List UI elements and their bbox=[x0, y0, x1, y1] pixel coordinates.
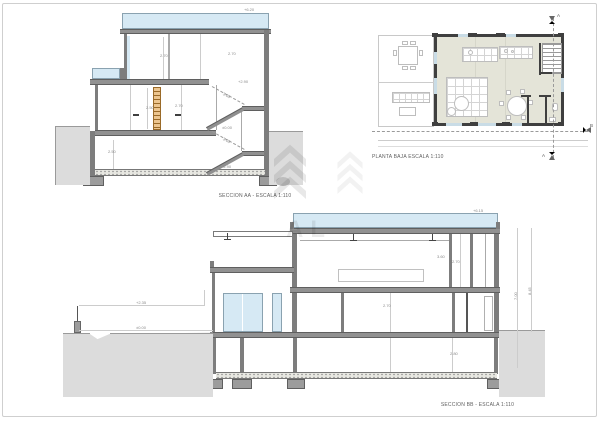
plan-coffee-table bbox=[454, 96, 469, 111]
plan-column bbox=[470, 122, 478, 126]
plan-column bbox=[468, 33, 477, 37]
plan-terrace-chair bbox=[419, 50, 423, 56]
plan-cooktop2 bbox=[511, 50, 514, 53]
plan-column bbox=[496, 33, 505, 37]
plan-door-bottom2 bbox=[478, 123, 496, 126]
bb-hanger bbox=[429, 240, 436, 241]
dim-label: +2.35 bbox=[136, 301, 146, 305]
dim-label: 2.70 bbox=[160, 54, 168, 58]
aa-door-mark2 bbox=[175, 114, 181, 116]
plan-chair bbox=[506, 115, 511, 120]
aa-door-mark bbox=[133, 114, 139, 116]
plan-stairs bbox=[542, 43, 562, 74]
dim-label: 2.80 bbox=[450, 352, 458, 356]
section-marker-a-bottom: A bbox=[542, 154, 545, 159]
aa-floor-slab bbox=[95, 130, 216, 136]
watermark-text: AL bbox=[286, 216, 332, 244]
plan-window-left bbox=[434, 52, 437, 64]
bb-post-base bbox=[74, 321, 81, 333]
bb-basement-column2 bbox=[293, 338, 297, 374]
bb-upper-door-line bbox=[485, 234, 486, 288]
aa-roof-slab bbox=[120, 29, 271, 34]
aa-stair-landing-1 bbox=[242, 106, 264, 111]
dim-label: 2.70 bbox=[228, 52, 236, 56]
bb-footing bbox=[232, 379, 252, 389]
dim-label: 2.70 bbox=[452, 260, 460, 264]
plan-ground-line2 bbox=[378, 146, 588, 147]
dim-label: +6.15 bbox=[473, 209, 483, 213]
plan-terrace-chair bbox=[410, 66, 416, 70]
bb-ground-column bbox=[341, 293, 344, 332]
plan-terrace-chair bbox=[402, 41, 408, 45]
plan-cooktop bbox=[504, 49, 508, 53]
section-marker-a-top: A bbox=[557, 14, 560, 19]
plan-outdoor-sofa bbox=[392, 92, 430, 103]
bb-terrain-surface-line bbox=[63, 333, 90, 334]
bb-terrain-left bbox=[63, 332, 213, 397]
dim-label: -2.90 bbox=[222, 165, 231, 169]
bb-upper-partition2 bbox=[470, 234, 473, 288]
plan-chair bbox=[506, 90, 511, 95]
aa-dim-line bbox=[163, 37, 164, 81]
aa-landing-post bbox=[241, 111, 242, 151]
aa-terrain-left bbox=[55, 126, 90, 185]
plan-stair-wall2 bbox=[539, 72, 552, 74]
bb-gravel-floor bbox=[216, 372, 497, 379]
bb-basement-wall bbox=[213, 338, 216, 374]
bb-glazed-door-double bbox=[223, 293, 263, 332]
section-marker-b: B bbox=[590, 124, 593, 129]
bb-ground-glass-line bbox=[390, 293, 391, 332]
plan-column bbox=[502, 122, 510, 126]
section-arrow-a-top bbox=[549, 16, 555, 24]
bb-low-left-wall bbox=[212, 273, 215, 333]
plan-door-right bbox=[561, 78, 564, 92]
plan-section-line-a bbox=[553, 18, 554, 158]
bb-low-parapet bbox=[210, 261, 214, 267]
dim-label: 7.00 bbox=[514, 292, 518, 300]
dim-label: +2.90 bbox=[238, 80, 248, 84]
bb-ground-partition bbox=[466, 293, 468, 332]
bb-ground-slab bbox=[210, 332, 499, 338]
plan-bath-wall4 bbox=[539, 95, 551, 97]
dim-label: 2.70 bbox=[175, 104, 183, 108]
plan-terrace-table bbox=[398, 46, 418, 65]
plan-column bbox=[432, 122, 438, 126]
bb-terrain-surface-line2 bbox=[110, 333, 213, 334]
plan-bath-wall2 bbox=[545, 96, 547, 125]
aa-stair-landing-2 bbox=[242, 151, 264, 156]
bb-ground-door bbox=[484, 296, 493, 331]
aa-upper-partition bbox=[168, 34, 170, 83]
bb-basement-column3 bbox=[494, 338, 498, 374]
plan-dining-table bbox=[507, 96, 527, 116]
bb-dim-line-jog bbox=[204, 290, 205, 305]
bb-mid-slab bbox=[290, 287, 500, 293]
aa-roof-glass-band bbox=[122, 13, 269, 29]
plan-caption: PLANTA BAJA ESCALA 1:110 bbox=[372, 155, 444, 160]
bb-upper-glass-line bbox=[460, 234, 461, 288]
bb-dim-line-upper bbox=[79, 305, 205, 306]
plan-window-top2 bbox=[506, 34, 516, 37]
aa-mid-left-wall bbox=[95, 85, 98, 131]
plan-window-top bbox=[458, 34, 468, 37]
aa-wood-ladder bbox=[153, 87, 161, 130]
bb-counter-outline bbox=[338, 269, 424, 282]
aa-dim-line3 bbox=[113, 140, 114, 170]
bb-ground-column2 bbox=[452, 293, 455, 332]
plan-door-bottom3 bbox=[512, 123, 522, 126]
plan-bath-wall3 bbox=[521, 95, 531, 97]
dim-label: ±0.00 bbox=[136, 326, 146, 330]
plan-sink bbox=[468, 50, 473, 55]
aa-mid-glass-line bbox=[130, 85, 131, 130]
dim-label: 3.60 bbox=[437, 255, 445, 259]
bb-footing bbox=[287, 379, 305, 389]
plan-section-line-b bbox=[372, 131, 588, 132]
bb-low-roof-slab bbox=[210, 267, 294, 273]
dim-label: 2.50 bbox=[146, 106, 154, 110]
aa-gravel-floor bbox=[95, 169, 265, 176]
bb-caption: SECCION BB - ESCALA 1:110 bbox=[430, 403, 525, 408]
bb-tall-left-wall bbox=[292, 234, 297, 333]
plan-window-left2 bbox=[434, 78, 437, 94]
bb-hanger bbox=[350, 240, 357, 241]
bb-dim-line-right2 bbox=[531, 228, 532, 332]
aa-upper-glass-line bbox=[200, 34, 201, 83]
plan-ground-line bbox=[378, 140, 588, 141]
drawing-sheet: +6.20 2.70 2.70 +2.90 2.50 2.70 2.50 ±0.… bbox=[0, 0, 600, 424]
dim-label: 2.70 bbox=[383, 304, 391, 308]
section-arrow-a-bottom bbox=[549, 152, 555, 160]
plan-terrace-chair bbox=[402, 66, 408, 70]
plan-chair bbox=[521, 115, 526, 120]
dim-label: +6.20 bbox=[244, 8, 254, 12]
bb-roof-parapet-right bbox=[496, 222, 500, 229]
bb-dim-line-lower bbox=[79, 330, 213, 331]
bb-terrain-right bbox=[499, 330, 545, 397]
dim-label: 8.45 bbox=[528, 287, 532, 295]
plan-terrace-divider bbox=[378, 82, 434, 83]
plan-chair bbox=[499, 101, 504, 106]
bb-canopy-slab bbox=[213, 231, 293, 237]
bb-hanger bbox=[224, 239, 231, 240]
watermark-chevron-logo-2 bbox=[336, 150, 364, 194]
plan-door-bottom bbox=[446, 123, 462, 126]
bb-basement-line bbox=[390, 338, 391, 372]
aa-mid-slab bbox=[90, 79, 209, 85]
plan-kitchen-island bbox=[462, 47, 498, 62]
bb-glazed-door-single bbox=[272, 293, 282, 332]
watermark-chevron-logo bbox=[272, 143, 308, 199]
dim-label: ±0.00 bbox=[222, 126, 232, 130]
plan-outdoor-table bbox=[399, 107, 416, 116]
plan-terrace-chair bbox=[410, 41, 416, 45]
plan-stair-wall bbox=[539, 43, 541, 75]
plan-bath-wall bbox=[527, 96, 529, 125]
plan-pouf bbox=[447, 107, 456, 116]
bb-tall-right-wall bbox=[494, 234, 499, 333]
dim-label: 2.50 bbox=[108, 150, 116, 154]
plan-chair bbox=[520, 89, 525, 94]
aa-upper-window bbox=[127, 36, 130, 82]
plan-terrace-chair bbox=[393, 50, 397, 56]
bb-basement-column bbox=[240, 338, 244, 374]
bb-door-mullion bbox=[242, 294, 243, 331]
aa-terrace-glass-band bbox=[92, 68, 120, 79]
